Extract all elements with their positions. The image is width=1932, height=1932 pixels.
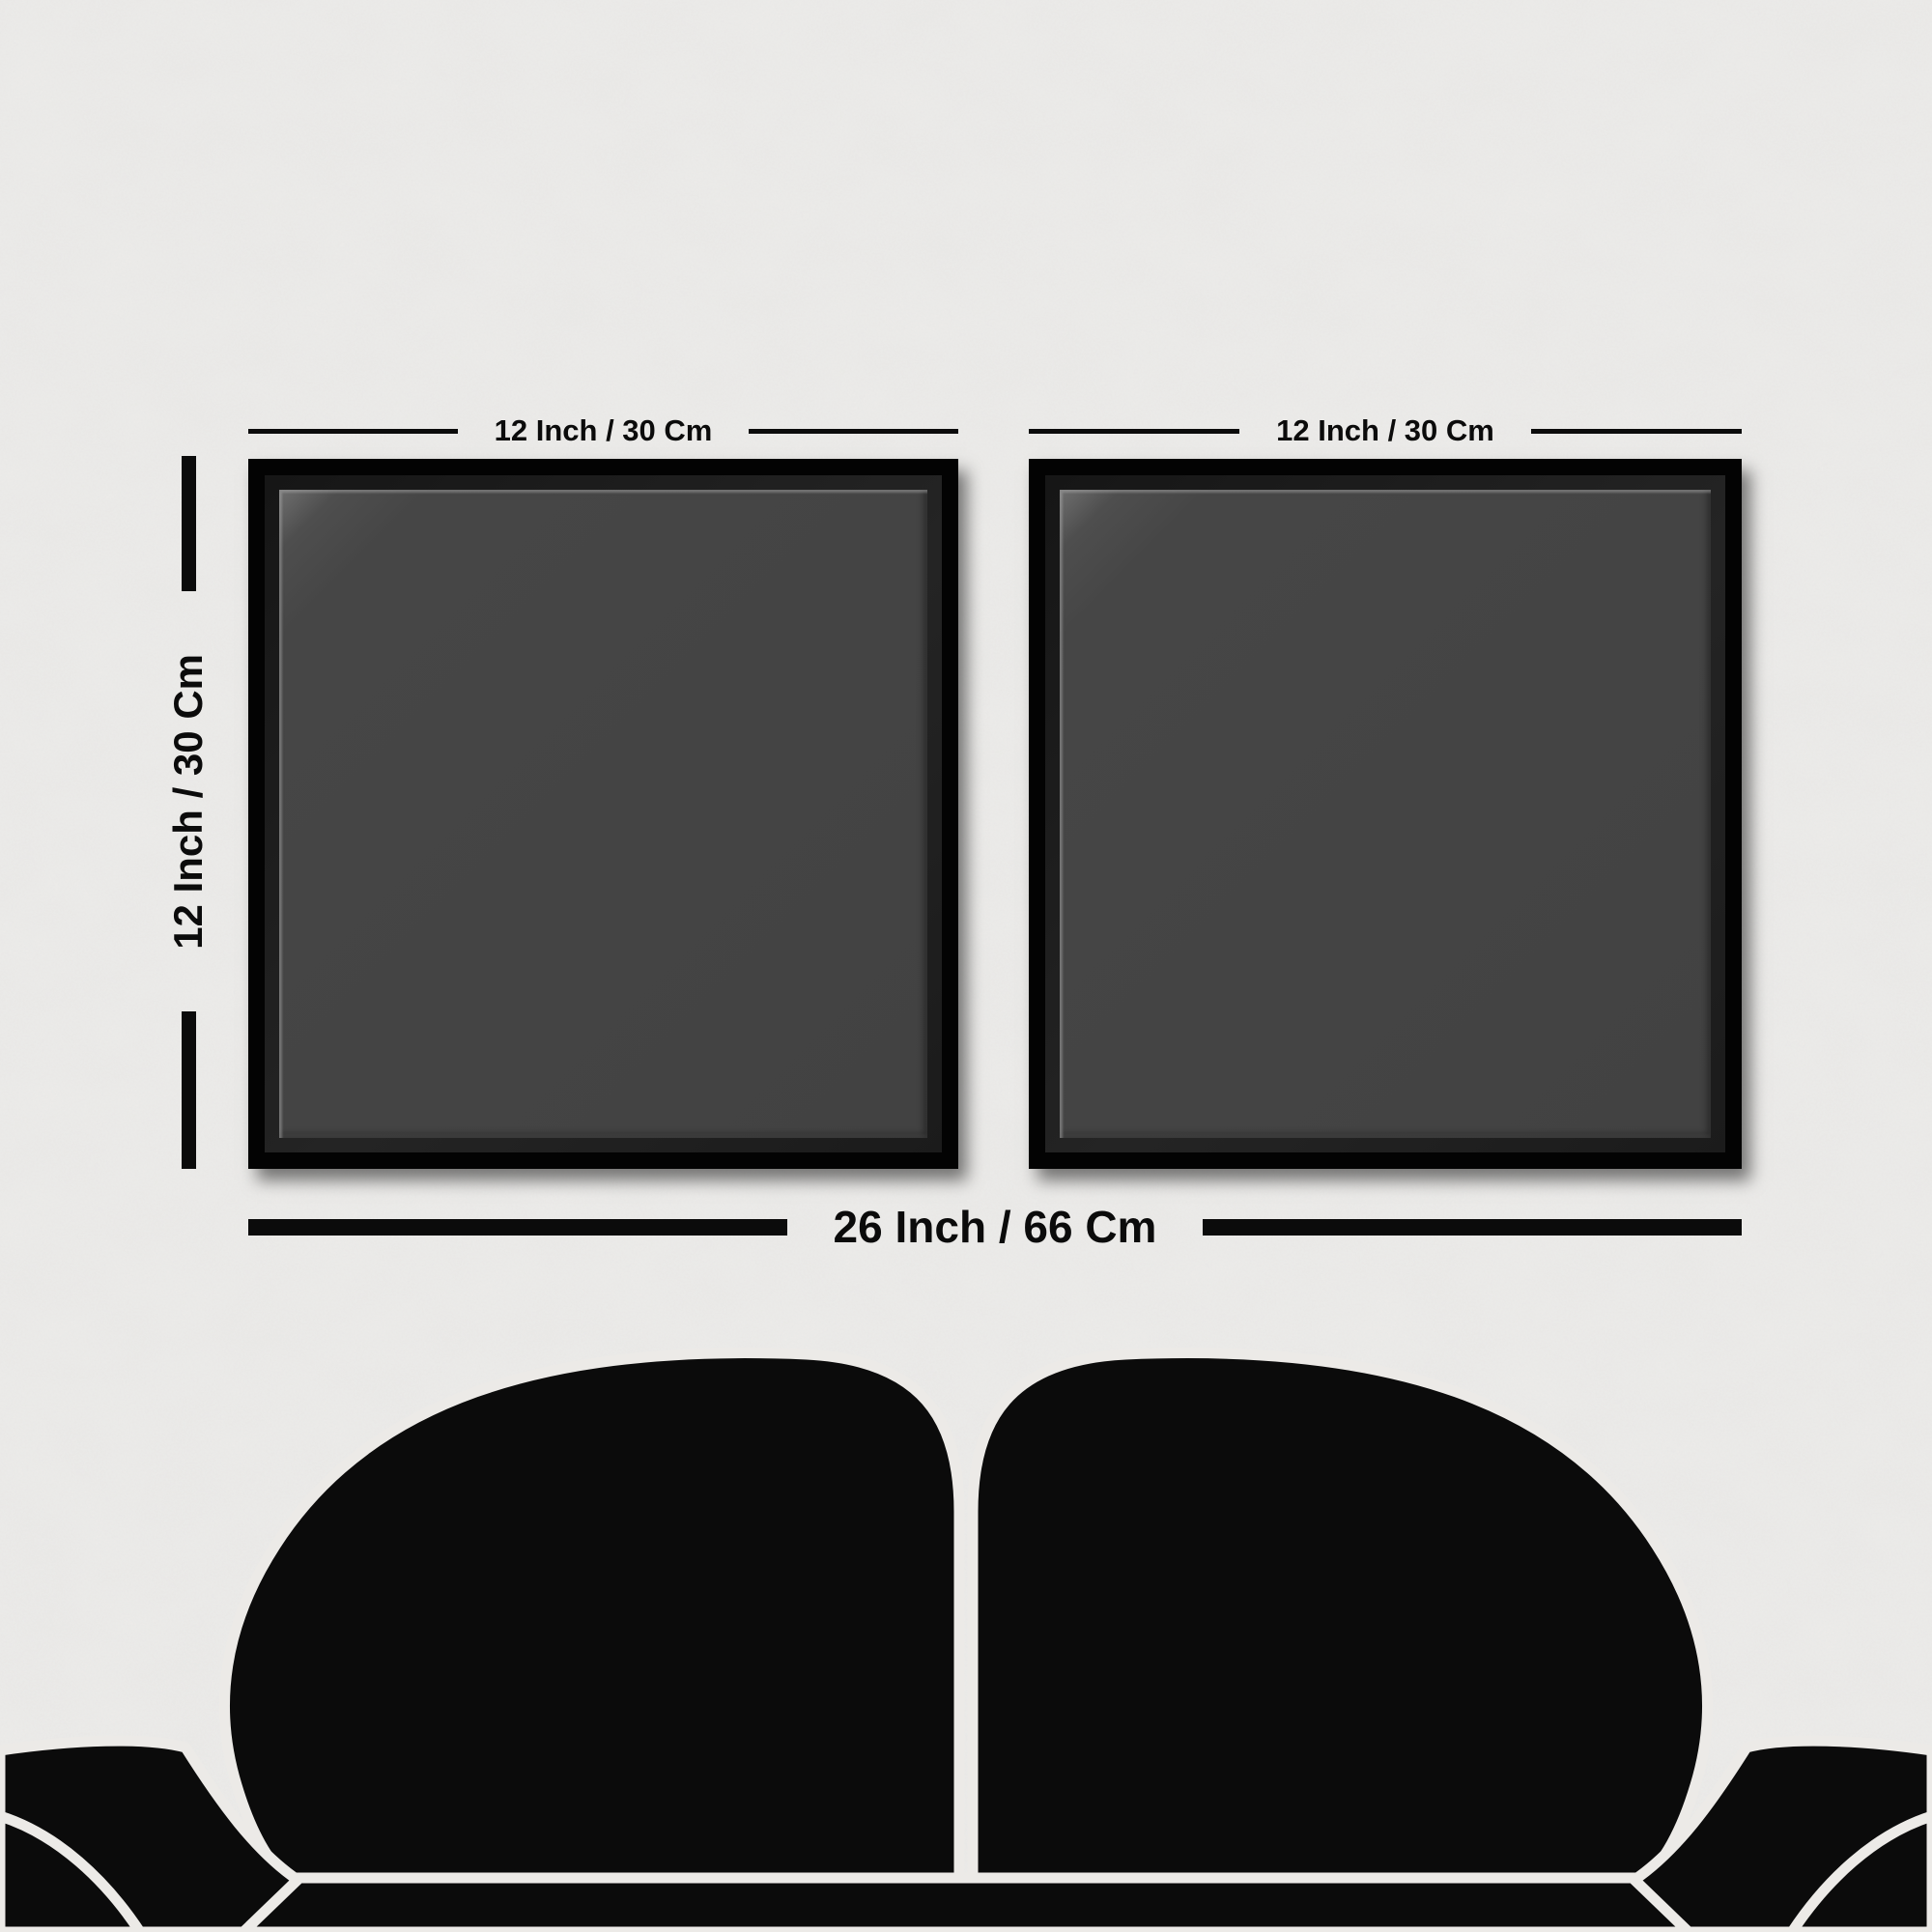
dimension-line xyxy=(1531,429,1742,434)
blank-canvas xyxy=(279,490,927,1138)
size-guide-scene: 12 Inch / 30 Cm 12 Inch / 30 Cm 12 Inch … xyxy=(0,0,1932,1932)
dimension-bar xyxy=(248,1219,787,1236)
blank-canvas xyxy=(1060,490,1711,1138)
sofa-backrest-cushions xyxy=(224,1353,1707,1880)
width-label-left: 12 Inch / 30 Cm xyxy=(495,413,713,448)
dimension-bar xyxy=(182,456,196,591)
width-dimension-left-frame: 12 Inch / 30 Cm xyxy=(248,404,958,458)
width-dimension-right-frame: 12 Inch / 30 Cm xyxy=(1029,404,1742,458)
height-label: 12 Inch / 30 Cm xyxy=(165,654,212,950)
dimension-line xyxy=(1029,429,1239,434)
frame-mat xyxy=(265,475,942,1152)
total-width-label: 26 Inch / 66 Cm xyxy=(834,1201,1157,1253)
picture-frame-right xyxy=(1029,459,1742,1169)
dimension-bar xyxy=(1203,1219,1742,1236)
sofa-seat xyxy=(241,1878,1690,1932)
frame-mat xyxy=(1045,475,1725,1152)
height-dimension: 12 Inch / 30 Cm xyxy=(150,456,227,1169)
total-width-dimension: 26 Inch / 66 Cm xyxy=(248,1198,1742,1256)
dimension-line xyxy=(248,429,458,434)
dimension-line xyxy=(749,429,958,434)
picture-frame-left xyxy=(248,459,958,1169)
dimension-bar xyxy=(182,1011,196,1169)
width-label-right: 12 Inch / 30 Cm xyxy=(1276,413,1494,448)
